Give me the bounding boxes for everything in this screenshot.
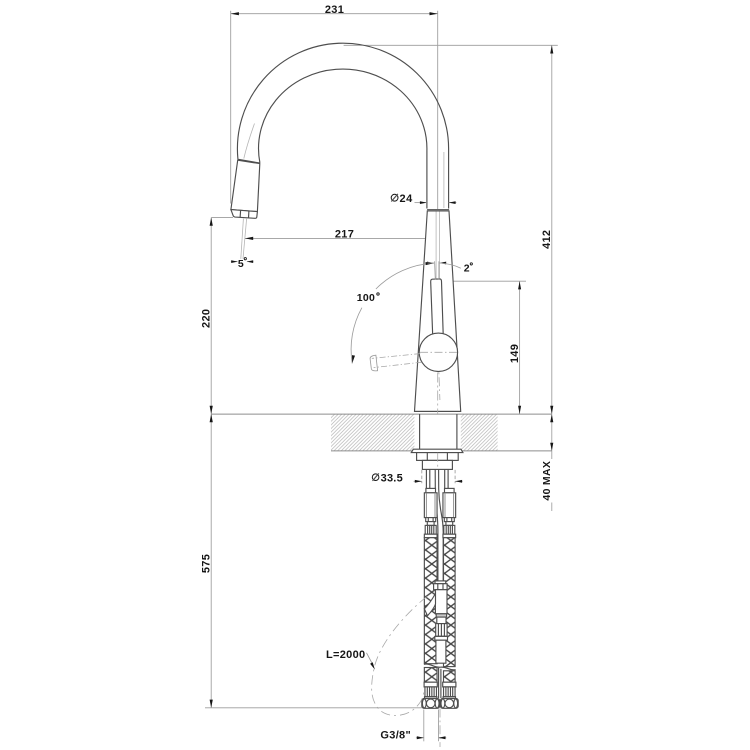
svg-text:149: 149 bbox=[509, 344, 521, 363]
svg-text:220: 220 bbox=[201, 309, 213, 328]
svg-text:24: 24 bbox=[399, 193, 413, 205]
svg-text:412: 412 bbox=[541, 230, 553, 249]
svg-text:100: 100 bbox=[357, 292, 375, 304]
svg-text:575: 575 bbox=[201, 554, 213, 573]
svg-text:217: 217 bbox=[335, 229, 354, 241]
svg-text:2: 2 bbox=[464, 263, 470, 275]
svg-text:40 MAX: 40 MAX bbox=[541, 461, 553, 501]
svg-text:L=2000: L=2000 bbox=[326, 649, 365, 661]
svg-text:G3/8": G3/8" bbox=[380, 729, 411, 741]
svg-text:231: 231 bbox=[325, 4, 344, 16]
svg-text:33.5: 33.5 bbox=[381, 472, 403, 484]
svg-text:5: 5 bbox=[238, 258, 244, 270]
